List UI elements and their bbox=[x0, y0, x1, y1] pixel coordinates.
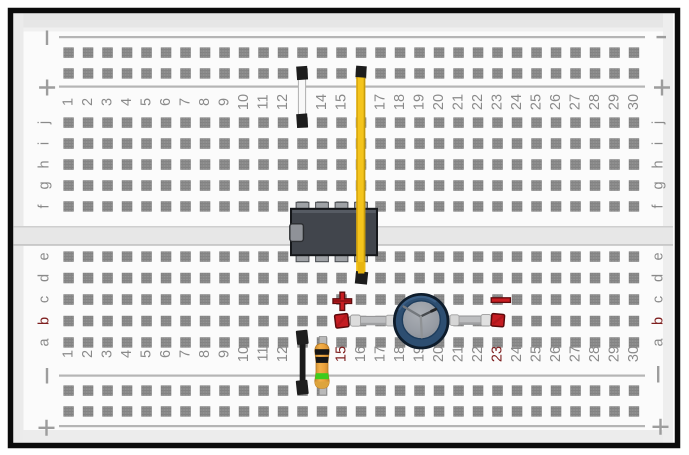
svg-text:21: 21 bbox=[451, 94, 467, 110]
svg-text:c: c bbox=[651, 296, 667, 303]
svg-text:27: 27 bbox=[568, 346, 584, 362]
svg-text:23: 23 bbox=[490, 346, 506, 362]
svg-text:b: b bbox=[651, 317, 667, 325]
svg-text:22: 22 bbox=[470, 94, 486, 110]
svg-text:3: 3 bbox=[100, 98, 116, 106]
svg-text:11: 11 bbox=[256, 346, 272, 361]
svg-text:11: 11 bbox=[256, 94, 272, 109]
svg-text:8: 8 bbox=[197, 350, 213, 358]
svg-text:28: 28 bbox=[587, 346, 603, 362]
svg-text:24: 24 bbox=[509, 94, 525, 110]
svg-text:g: g bbox=[651, 181, 667, 189]
svg-text:16: 16 bbox=[353, 346, 369, 362]
svg-text:25: 25 bbox=[529, 94, 545, 110]
svg-text:29: 29 bbox=[607, 94, 623, 110]
svg-text:h: h bbox=[651, 160, 667, 168]
svg-text:4: 4 bbox=[119, 98, 135, 106]
svg-text:12: 12 bbox=[275, 346, 291, 362]
svg-text:a: a bbox=[37, 338, 53, 347]
svg-text:6: 6 bbox=[158, 350, 174, 358]
svg-text:28: 28 bbox=[587, 94, 603, 110]
svg-text:21: 21 bbox=[451, 346, 467, 362]
svg-text:18: 18 bbox=[392, 94, 408, 110]
svg-text:30: 30 bbox=[626, 94, 642, 110]
svg-text:14: 14 bbox=[314, 94, 330, 110]
svg-text:10: 10 bbox=[236, 94, 252, 110]
svg-text:b: b bbox=[37, 317, 53, 325]
svg-text:d: d bbox=[37, 274, 53, 282]
svg-text:30: 30 bbox=[626, 346, 642, 362]
svg-text:1: 1 bbox=[61, 98, 77, 106]
svg-text:12: 12 bbox=[275, 94, 291, 110]
svg-text:j: j bbox=[651, 121, 667, 125]
svg-text:4: 4 bbox=[119, 350, 135, 358]
svg-text:j: j bbox=[37, 121, 53, 125]
svg-text:20: 20 bbox=[431, 346, 447, 362]
svg-text:10: 10 bbox=[236, 346, 252, 362]
svg-text:17: 17 bbox=[373, 346, 389, 362]
svg-text:d: d bbox=[651, 274, 667, 282]
svg-text:1: 1 bbox=[61, 350, 77, 358]
svg-text:19: 19 bbox=[412, 94, 428, 110]
svg-text:20: 20 bbox=[431, 94, 447, 110]
svg-text:24: 24 bbox=[509, 346, 525, 362]
svg-text:15: 15 bbox=[334, 346, 350, 362]
svg-text:23: 23 bbox=[490, 94, 506, 110]
svg-text:25: 25 bbox=[529, 346, 545, 362]
svg-text:g: g bbox=[37, 181, 53, 189]
svg-text:29: 29 bbox=[607, 346, 623, 362]
svg-text:7: 7 bbox=[178, 350, 194, 358]
svg-text:26: 26 bbox=[548, 94, 564, 110]
svg-text:5: 5 bbox=[139, 98, 155, 106]
svg-text:7: 7 bbox=[178, 98, 194, 106]
svg-text:15: 15 bbox=[334, 94, 350, 110]
svg-text:17: 17 bbox=[373, 94, 389, 110]
svg-text:c: c bbox=[37, 296, 53, 303]
svg-text:e: e bbox=[651, 252, 667, 260]
svg-text:9: 9 bbox=[217, 350, 233, 358]
svg-text:8: 8 bbox=[197, 98, 213, 106]
svg-text:2: 2 bbox=[80, 98, 96, 106]
svg-text:i: i bbox=[37, 142, 53, 145]
svg-text:5: 5 bbox=[139, 350, 155, 358]
svg-text:a: a bbox=[651, 338, 667, 347]
svg-text:18: 18 bbox=[392, 346, 408, 362]
svg-text:6: 6 bbox=[158, 98, 174, 106]
svg-text:26: 26 bbox=[548, 346, 564, 362]
svg-text:i: i bbox=[651, 142, 667, 145]
svg-text:2: 2 bbox=[80, 350, 96, 358]
svg-text:3: 3 bbox=[100, 350, 116, 358]
svg-text:22: 22 bbox=[470, 346, 486, 362]
svg-text:9: 9 bbox=[217, 98, 233, 106]
svg-text:h: h bbox=[37, 160, 53, 168]
svg-text:e: e bbox=[37, 252, 53, 260]
svg-text:27: 27 bbox=[568, 94, 584, 110]
